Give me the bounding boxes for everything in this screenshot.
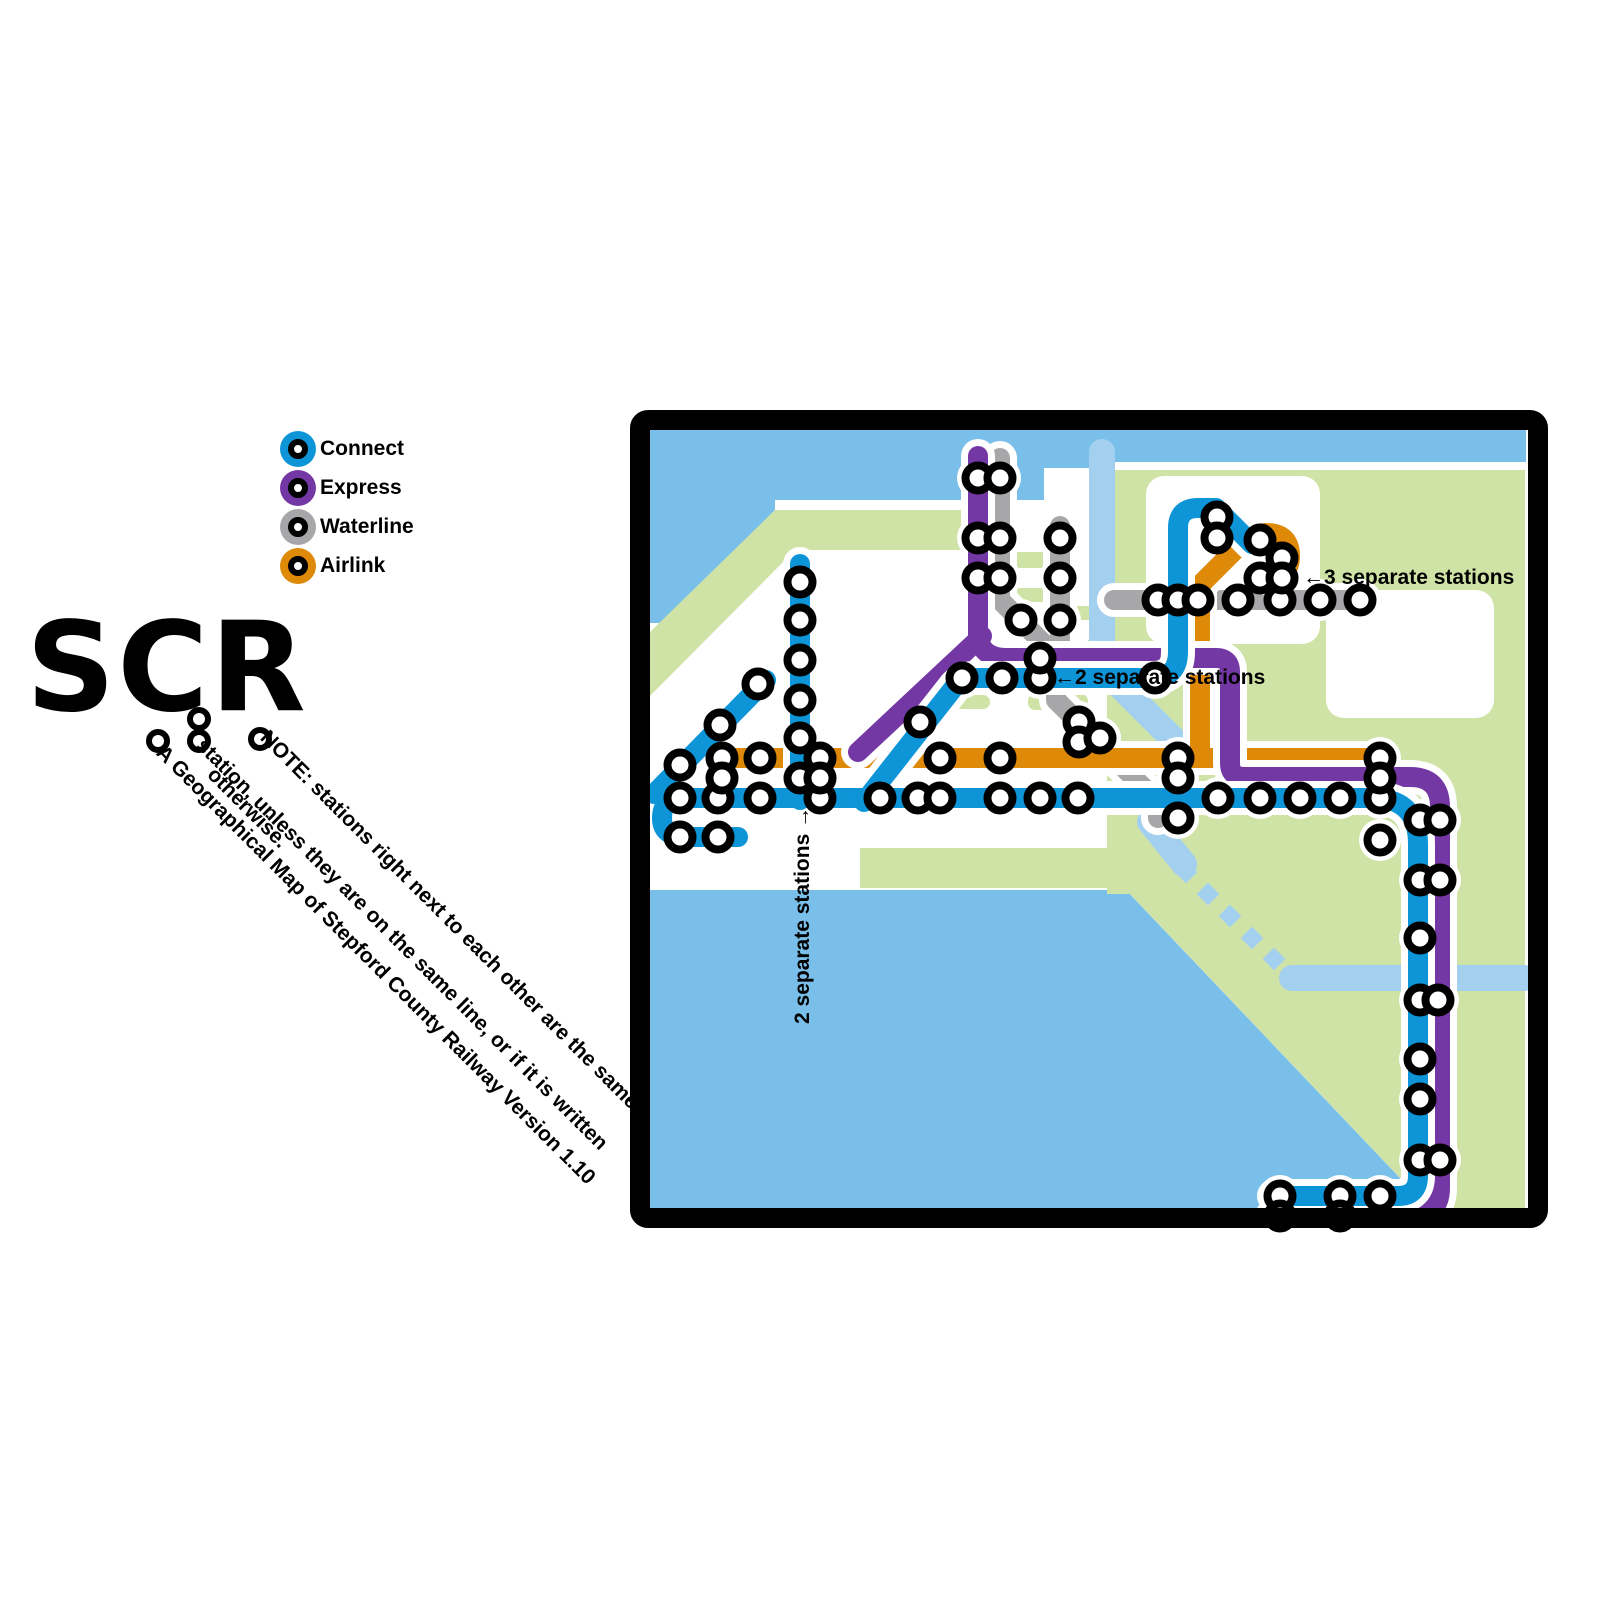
annotation-two-separate-stations-horizontal: ←2 separate stations <box>1054 666 1265 690</box>
legend-item-express: Express <box>280 473 414 503</box>
station-marker <box>1348 588 1373 613</box>
station-marker <box>1048 566 1073 591</box>
station-marker <box>710 766 735 791</box>
legend-item-waterline: Waterline <box>280 512 414 542</box>
station-marker <box>1428 808 1453 833</box>
station-marker <box>1048 608 1073 633</box>
legend-item-connect: Connect <box>280 434 414 464</box>
station-marker <box>1248 786 1273 811</box>
station-marker <box>1088 726 1113 751</box>
scr-logo: SCR <box>26 596 308 740</box>
station-marker <box>908 710 933 735</box>
station-marker <box>1028 646 1053 671</box>
station-marker <box>1066 786 1091 811</box>
station-marker <box>988 786 1013 811</box>
station-marker <box>1028 786 1053 811</box>
station-marker <box>868 786 893 811</box>
legend-item-airlink: Airlink <box>280 551 414 581</box>
station-marker <box>788 648 813 673</box>
scr-map-page: ConnectExpressWaterlineAirlink SCR NOTE:… <box>0 0 1600 1600</box>
station-marker <box>668 825 693 850</box>
station-marker <box>988 746 1013 771</box>
station-marker <box>668 786 693 811</box>
legend-label: Express <box>320 476 402 500</box>
land-area <box>860 848 1130 888</box>
station-marker <box>748 786 773 811</box>
station-marker <box>950 666 975 691</box>
station-marker <box>706 825 731 850</box>
legend: ConnectExpressWaterlineAirlink <box>280 434 414 590</box>
airlink-line-icon <box>288 556 308 576</box>
station-marker <box>808 766 833 791</box>
station-marker <box>748 746 773 771</box>
station-marker <box>746 672 771 697</box>
station-marker <box>1270 566 1295 591</box>
station-marker <box>1206 786 1231 811</box>
station-marker <box>988 466 1013 491</box>
station-marker <box>1186 588 1211 613</box>
station-marker <box>1166 766 1191 791</box>
legend-label: Waterline <box>320 515 414 539</box>
connect-line-icon <box>288 439 308 459</box>
station-marker <box>1009 608 1034 633</box>
annotation-two-separate-stations-vertical: 2 separate stations → <box>791 812 815 1024</box>
station-marker <box>788 688 813 713</box>
express-line-icon <box>288 478 308 498</box>
station-marker <box>1428 868 1453 893</box>
station-marker <box>1368 766 1393 791</box>
station-marker <box>788 608 813 633</box>
station-marker <box>1368 828 1393 853</box>
station-marker <box>1368 1184 1393 1209</box>
station-marker <box>1328 786 1353 811</box>
station-marker <box>788 570 813 595</box>
station-marker <box>1428 1148 1453 1173</box>
station-marker <box>1048 526 1073 551</box>
station-marker <box>1426 988 1451 1013</box>
station-marker <box>988 526 1013 551</box>
station-marker <box>1288 786 1313 811</box>
station-marker <box>1408 1087 1433 1112</box>
waterline-line-icon <box>288 517 308 537</box>
station-marker <box>1166 806 1191 831</box>
station-marker <box>1308 588 1333 613</box>
legend-label: Airlink <box>320 554 385 578</box>
station-marker <box>668 753 693 778</box>
station-marker <box>988 566 1013 591</box>
station-marker <box>1226 588 1251 613</box>
station-marker <box>928 786 953 811</box>
station-marker <box>990 666 1015 691</box>
station-marker <box>1205 526 1230 551</box>
annotation-three-separate-stations: ←3 separate stations <box>1303 566 1514 590</box>
station-marker <box>1408 926 1433 951</box>
legend-label: Connect <box>320 437 404 461</box>
station-marker <box>708 713 733 738</box>
station-marker <box>1408 1047 1433 1072</box>
station-marker <box>928 746 953 771</box>
